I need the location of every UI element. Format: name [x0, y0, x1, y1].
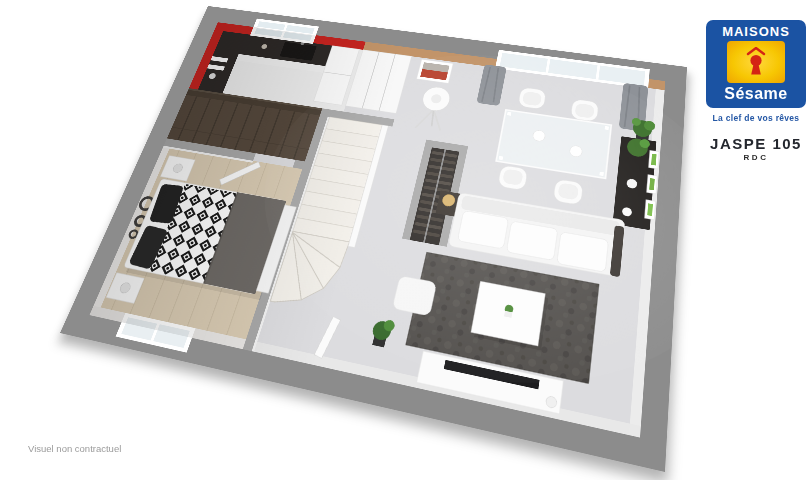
brand-tagline: La clef de vos rêves — [702, 113, 810, 123]
keyhole-badge — [727, 41, 785, 83]
brand-name-top: MAISONS — [722, 25, 790, 38]
plan-level: RDC — [702, 153, 810, 162]
disclaimer-text: Visuel non contractuel — [28, 443, 121, 454]
page: MAISONS Sésame La clef de vos rêves JASP… — [0, 0, 811, 480]
brand-logo: MAISONS Sésame — [706, 20, 806, 108]
floor-plan — [60, 6, 687, 472]
floorplan-render — [60, 6, 687, 472]
brand-name-script: Sésame — [724, 86, 788, 102]
keyhole-icon — [744, 47, 768, 77]
side-panel: MAISONS Sésame La clef de vos rêves JASP… — [702, 20, 810, 162]
plan-title: JASPE 105 — [702, 135, 810, 152]
